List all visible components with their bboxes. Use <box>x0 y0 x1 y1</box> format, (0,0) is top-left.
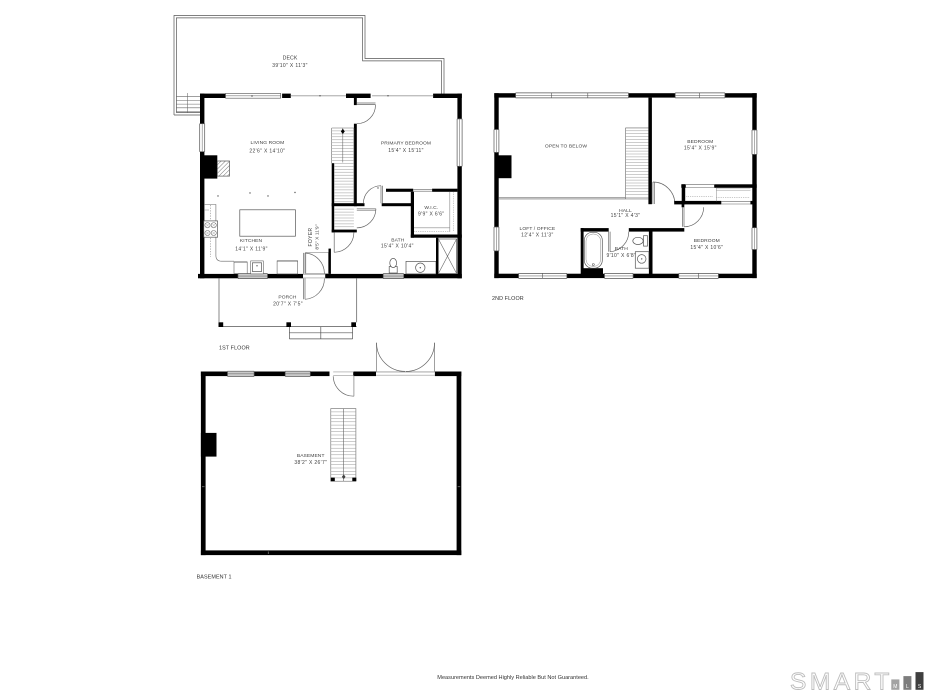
svg-text:KITCHEN: KITCHEN <box>240 238 263 244</box>
svg-text:38'2" X 26'7": 38'2" X 26'7" <box>294 460 327 466</box>
svg-text:PORCH: PORCH <box>278 295 297 301</box>
svg-text:BATH: BATH <box>615 246 628 252</box>
svg-text:BEDROOM: BEDROOM <box>694 238 720 244</box>
svg-text:2ND FLOOR: 2ND FLOOR <box>492 296 524 302</box>
svg-text:M: M <box>893 684 897 690</box>
svg-text:BEDROOM: BEDROOM <box>687 139 713 145</box>
svg-text:PRIMARY BEDROOM: PRIMARY BEDROOM <box>381 141 431 147</box>
svg-text:DECK: DECK <box>283 56 298 62</box>
svg-text:9'9" X 6'6": 9'9" X 6'6" <box>418 212 445 218</box>
svg-text:20'7" X 7'5": 20'7" X 7'5" <box>273 302 303 308</box>
svg-text:9'10" X 6'8": 9'10" X 6'8" <box>606 253 636 259</box>
svg-text:15'4" X 15'9": 15'4" X 15'9" <box>684 145 717 151</box>
svg-text:8'5" X 11'9": 8'5" X 11'9" <box>315 224 321 249</box>
svg-text:15'1" X 4'3": 15'1" X 4'3" <box>611 213 641 219</box>
svg-text:LOFT / OFFICE: LOFT / OFFICE <box>520 226 556 232</box>
svg-text:L: L <box>906 684 909 690</box>
svg-text:Measurements Deemed Highly Rel: Measurements Deemed Highly Reliable But … <box>437 675 589 681</box>
svg-text:14'1" X 11'9": 14'1" X 11'9" <box>235 246 267 252</box>
svg-text:BASEMENT: BASEMENT <box>297 453 325 459</box>
svg-text:BASEMENT 1: BASEMENT 1 <box>197 575 232 581</box>
svg-text:15'4" X 15'11": 15'4" X 15'11" <box>388 148 424 154</box>
svg-text:SMART: SMART <box>790 669 893 696</box>
svg-text:12'4" X 11'3": 12'4" X 11'3" <box>521 233 553 239</box>
svg-text:22'6" X 14'10": 22'6" X 14'10" <box>249 149 285 155</box>
svg-text:15'4" X 10'6": 15'4" X 10'6" <box>690 245 723 251</box>
svg-text:W.I.C.: W.I.C. <box>424 205 438 211</box>
svg-text:OPEN TO BELOW: OPEN TO BELOW <box>545 144 587 150</box>
svg-text:LIVING ROOM: LIVING ROOM <box>251 140 285 146</box>
svg-text:FOYER: FOYER <box>308 227 314 246</box>
svg-text:15'4" X 10'4": 15'4" X 10'4" <box>381 243 414 249</box>
svg-text:1ST FLOOR: 1ST FLOOR <box>219 346 250 352</box>
svg-text:39'10" X 11'3": 39'10" X 11'3" <box>272 63 308 69</box>
